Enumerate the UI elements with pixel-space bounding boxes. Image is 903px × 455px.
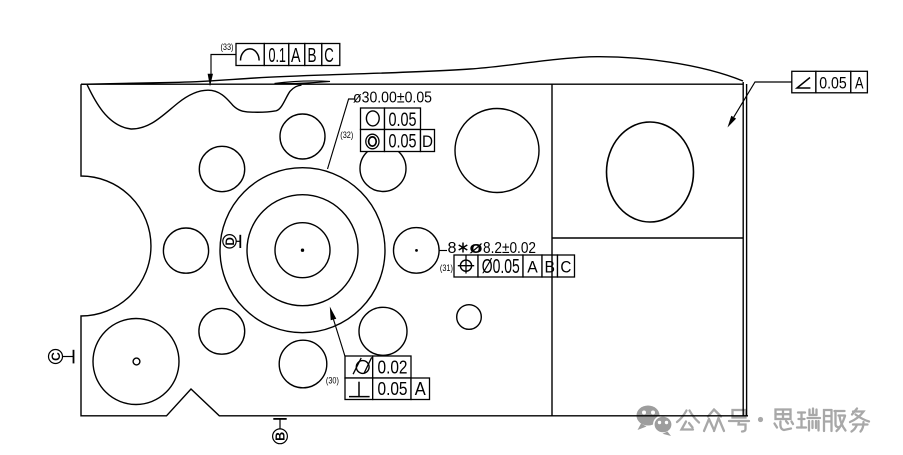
svg-text:0.1: 0.1 bbox=[268, 45, 286, 67]
svg-text:ø: ø bbox=[470, 238, 484, 257]
svg-text:B: B bbox=[308, 45, 317, 67]
svg-text:0.05: 0.05 bbox=[378, 379, 408, 399]
svg-text:B: B bbox=[545, 258, 556, 277]
svg-text:(31): (31) bbox=[440, 263, 453, 274]
svg-text:C: C bbox=[324, 45, 334, 67]
svg-text:D: D bbox=[422, 132, 433, 151]
svg-text:0.02: 0.02 bbox=[378, 357, 408, 377]
svg-text:0.05: 0.05 bbox=[389, 132, 417, 153]
svg-text:(32): (32) bbox=[340, 130, 353, 141]
svg-text:C: C bbox=[560, 258, 571, 277]
svg-text:A: A bbox=[291, 45, 301, 67]
svg-text:(33): (33) bbox=[221, 42, 234, 53]
svg-text:8.2±0.02: 8.2±0.02 bbox=[483, 240, 536, 257]
svg-text:D: D bbox=[225, 237, 237, 245]
svg-text:(30): (30) bbox=[326, 376, 339, 387]
svg-text:C: C bbox=[49, 352, 63, 361]
svg-text:A: A bbox=[527, 258, 538, 277]
svg-text:0.05: 0.05 bbox=[389, 110, 417, 131]
svg-text:Ø0.05: Ø0.05 bbox=[482, 256, 520, 278]
svg-text:8: 8 bbox=[448, 240, 457, 257]
svg-text:ø30.00±0.05: ø30.00±0.05 bbox=[353, 90, 432, 107]
svg-text:B: B bbox=[274, 432, 288, 441]
svg-text:A: A bbox=[855, 73, 864, 92]
svg-text:A: A bbox=[415, 379, 426, 399]
svg-text:0.05: 0.05 bbox=[819, 73, 847, 92]
